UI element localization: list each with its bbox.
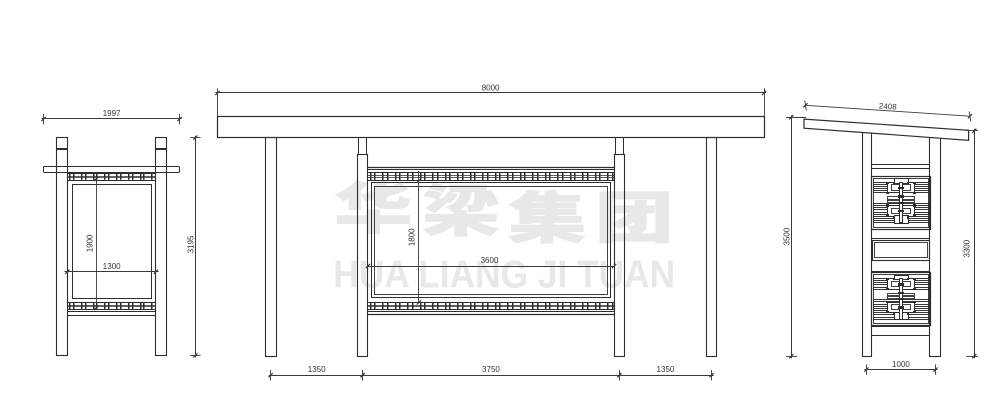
svg-text:1300: 1300 bbox=[103, 262, 121, 271]
svg-text:1350: 1350 bbox=[657, 365, 675, 374]
svg-text:3750: 3750 bbox=[482, 365, 500, 374]
svg-text:1997: 1997 bbox=[103, 109, 121, 118]
svg-text:1900: 1900 bbox=[86, 234, 95, 252]
svg-text:3195: 3195 bbox=[187, 235, 196, 253]
svg-text:1000: 1000 bbox=[892, 360, 910, 369]
svg-text:3300: 3300 bbox=[962, 239, 971, 257]
svg-text:HUA LIANG JI TUAN: HUA LIANG JI TUAN bbox=[333, 253, 675, 296]
svg-text:1350: 1350 bbox=[308, 365, 326, 374]
svg-text:3600: 3600 bbox=[481, 256, 499, 265]
svg-text:8000: 8000 bbox=[482, 84, 500, 93]
svg-text:3500: 3500 bbox=[782, 227, 791, 245]
svg-text:2408: 2408 bbox=[879, 101, 898, 111]
svg-text:1800: 1800 bbox=[407, 228, 416, 246]
